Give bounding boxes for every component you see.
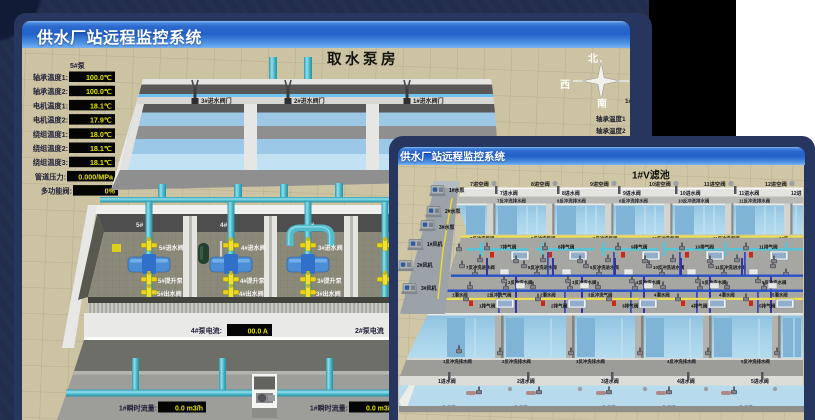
svg-text:1#瞬时流量:: 1#瞬时流量:: [119, 404, 157, 413]
svg-text:1#V滤池: 1#V滤池: [632, 169, 670, 182]
svg-text:11进水阀: 11进水阀: [739, 190, 759, 197]
svg-text:1进水阀: 1进水阀: [438, 378, 456, 385]
svg-text:电机温度1:: 电机温度1:: [33, 101, 68, 110]
svg-text:3#出水阀: 3#出水阀: [316, 290, 341, 298]
svg-text:3#进水阀门: 3#进水阀门: [201, 97, 232, 105]
svg-text:1#风机: 1#风机: [427, 241, 443, 248]
svg-text:10反冲洗排水阀: 10反冲洗排水阀: [678, 198, 710, 205]
svg-text:轴承温度2:: 轴承温度2:: [33, 87, 68, 96]
svg-text:10进水阀: 10进水阀: [680, 190, 701, 197]
svg-text:7排气阀: 7排气阀: [500, 244, 517, 251]
svg-text:3#提升泵: 3#提升泵: [317, 277, 343, 285]
svg-text:5#出水阀: 5#出水阀: [157, 290, 182, 298]
svg-text:3进水阀: 3进水阀: [601, 378, 619, 385]
svg-text:管道压力:: 管道压力:: [35, 172, 66, 181]
svg-text:2#泵电流: 2#泵电流: [355, 326, 384, 335]
svg-text:3#进水阀: 3#进水阀: [318, 244, 343, 252]
svg-text:3反冲洗排水阀: 3反冲洗排水阀: [576, 358, 605, 365]
svg-text:5反冲洗排水阀: 5反冲洗排水阀: [741, 358, 770, 365]
svg-text:18.0℃: 18.0℃: [90, 130, 112, 139]
svg-text:9进水阀: 9进水阀: [623, 190, 641, 197]
svg-text:7反冲洗排水阀: 7反冲洗排水阀: [497, 198, 526, 205]
svg-text:7进水阀: 7进水阀: [500, 190, 518, 197]
svg-text:5#提升泵: 5#提升泵: [158, 277, 184, 285]
svg-text:11排气阀: 11排气阀: [759, 244, 778, 251]
svg-text:4#提升泵: 4#提升泵: [240, 277, 266, 285]
svg-text:5排气阀: 5排气阀: [759, 303, 776, 310]
svg-text:3排气阀: 3排气阀: [622, 303, 639, 310]
svg-text:2#进水阀门: 2#进水阀门: [294, 97, 325, 105]
svg-text:9进空阀: 9进空阀: [590, 180, 609, 188]
svg-text:2#风机: 2#风机: [417, 262, 433, 269]
svg-text:绕组温度1:: 绕组温度1:: [33, 130, 68, 139]
svg-text:北: 北: [588, 52, 598, 65]
svg-text:取水泵房: 取水泵房: [327, 50, 399, 68]
svg-text:轴承温度1: 轴承温度1: [596, 114, 626, 123]
svg-text:绕组温度3:: 绕组温度3:: [33, 158, 68, 167]
svg-text:8反冲洗排水阀: 8反冲洗排水阀: [557, 198, 586, 205]
svg-text:1#瞬时流量:: 1#瞬时流量:: [310, 404, 348, 413]
svg-text:2反冲洗排水阀: 2反冲洗排水阀: [502, 358, 531, 365]
svg-text:7进空阀: 7进空阀: [470, 180, 489, 188]
svg-text:1#水泵: 1#水泵: [449, 187, 466, 194]
svg-text:17.9℃: 17.9℃: [90, 116, 112, 125]
svg-text:7反冲洗进水阀: 7反冲洗进水阀: [466, 264, 495, 271]
svg-text:2#水泵: 2#水泵: [445, 208, 462, 215]
svg-text:1#: 1#: [625, 98, 630, 105]
svg-text:5进水阀: 5进水阀: [751, 378, 769, 385]
svg-text:5#: 5#: [136, 222, 144, 229]
svg-text:4反冲洗排水阀: 4反冲洗排水阀: [667, 358, 696, 365]
svg-text:0.0 m3/h: 0.0 m3/h: [175, 406, 203, 413]
svg-text:12进空阀: 12进空阀: [765, 180, 787, 188]
svg-text:5#泵: 5#泵: [70, 61, 85, 70]
svg-text:11反冲洗排水阀: 11反冲洗排水阀: [739, 198, 771, 205]
svg-text:电机温度2:: 电机温度2:: [33, 116, 68, 125]
svg-text:绕组温度2:: 绕组温度2:: [33, 144, 68, 153]
svg-text:18.1℃: 18.1℃: [90, 158, 112, 167]
svg-text:2潜水阀: 2潜水阀: [540, 292, 556, 299]
svg-text:1排气阀: 1排气阀: [479, 303, 496, 310]
svg-text:11进空阀: 11进空阀: [704, 180, 726, 188]
svg-text:12进: 12进: [791, 190, 802, 197]
svg-text:10进空阀: 10进空阀: [649, 180, 671, 188]
svg-text:4#出水阀: 4#出水阀: [239, 290, 264, 298]
svg-text:4潜水阀: 4潜水阀: [719, 292, 735, 299]
svg-text:1#进水阀门: 1#进水阀门: [413, 97, 444, 105]
svg-text:2反冲洗气阀: 2反冲洗气阀: [487, 292, 512, 299]
svg-text:3#风机: 3#风机: [421, 285, 437, 292]
svg-text:18.1℃: 18.1℃: [90, 101, 112, 110]
svg-text:1反冲洗排水阀: 1反冲洗排水阀: [443, 358, 472, 365]
svg-text:8进水阀: 8进水阀: [562, 190, 580, 197]
svg-text:100.0℃: 100.0℃: [86, 73, 112, 82]
svg-text:10排气阀: 10排气阀: [695, 244, 714, 251]
svg-text:9反冲洗排水阀: 9反冲洗排水阀: [619, 198, 648, 205]
svg-text:4进水阀: 4进水阀: [677, 378, 695, 385]
svg-text:南: 南: [597, 97, 607, 110]
svg-text:西: 西: [560, 79, 570, 91]
svg-text:4排气阀: 4排气阀: [691, 303, 708, 310]
svg-text:4#进水阀: 4#进水阀: [241, 244, 266, 252]
svg-text:轴承温度1:: 轴承温度1:: [33, 73, 68, 82]
svg-text:4潜水阀: 4潜水阀: [654, 292, 670, 299]
svg-text:100.0℃: 100.0℃: [86, 87, 112, 96]
svg-text:多功能阀:: 多功能阀:: [41, 187, 72, 196]
svg-text:5潜水阀: 5潜水阀: [772, 292, 788, 299]
svg-text:9排气阀: 9排气阀: [631, 244, 648, 251]
svg-text:8排气阀: 8排气阀: [558, 244, 575, 251]
svg-text:5#进水阀: 5#进水阀: [159, 244, 184, 252]
svg-text:18.1℃: 18.1℃: [90, 144, 112, 153]
svg-text:0.000/MPa: 0.000/MPa: [78, 172, 114, 181]
svg-text:8进空阀: 8进空阀: [531, 180, 550, 188]
svg-text:3#水泵: 3#水泵: [439, 224, 456, 231]
svg-text:00.0 A: 00.0 A: [248, 329, 268, 336]
svg-text:2排气阀: 2排气阀: [551, 303, 568, 310]
svg-text:轴承温度2: 轴承温度2: [596, 126, 626, 135]
svg-text:4#泵电流:: 4#泵电流:: [191, 326, 222, 335]
svg-text:4#: 4#: [220, 222, 228, 229]
svg-text:2进水阀: 2进水阀: [517, 378, 535, 385]
